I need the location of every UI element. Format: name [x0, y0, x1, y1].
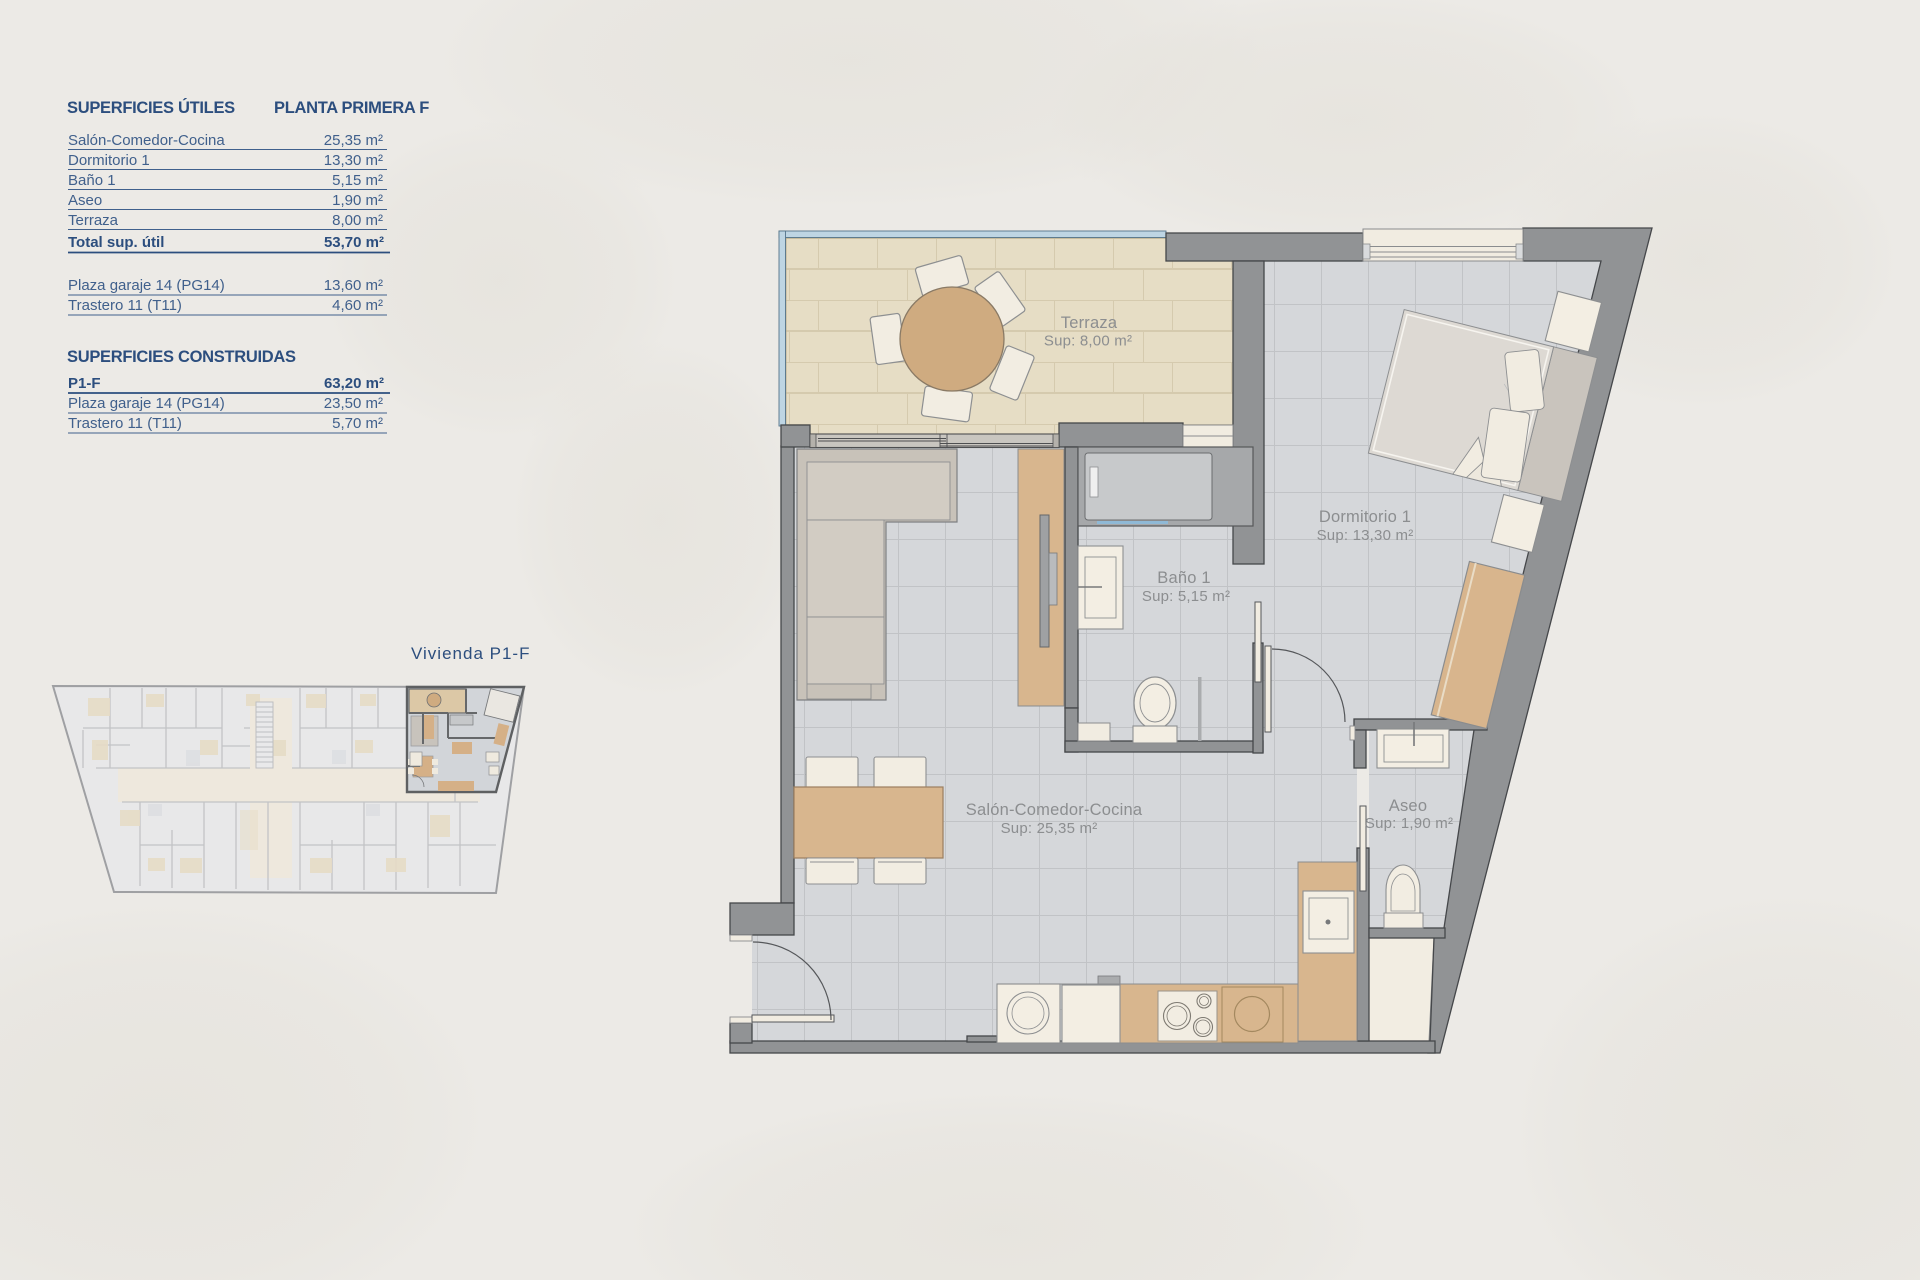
svg-text:PLANTA PRIMERA F: PLANTA PRIMERA F [274, 99, 429, 117]
svg-text:63,20 m²: 63,20 m² [324, 375, 384, 392]
svg-text:SUPERFICIES CONSTRUIDAS: SUPERFICIES CONSTRUIDAS [67, 348, 296, 366]
svg-text:Dormitorio 1: Dormitorio 1 [68, 152, 150, 169]
svg-text:13,60 m²: 13,60 m² [324, 277, 383, 294]
svg-text:Sup: 25,35 m²: Sup: 25,35 m² [1001, 820, 1098, 837]
svg-text:Plaza garaje 14 (PG14): Plaza garaje 14 (PG14) [68, 395, 225, 412]
svg-text:Aseo: Aseo [68, 192, 102, 209]
svg-text:Sup: 1,90 m²: Sup: 1,90 m² [1365, 815, 1453, 832]
svg-text:P1-F: P1-F [68, 375, 101, 392]
svg-text:Vivienda P1-F: Vivienda P1-F [411, 644, 530, 663]
svg-text:Dormitorio 1: Dormitorio 1 [1319, 508, 1411, 526]
svg-text:Aseo: Aseo [1389, 797, 1427, 815]
svg-text:25,35 m²: 25,35 m² [324, 132, 383, 149]
svg-text:5,15 m²: 5,15 m² [332, 172, 383, 189]
svg-text:Salón-Comedor-Cocina: Salón-Comedor-Cocina [68, 132, 225, 149]
svg-text:5,70 m²: 5,70 m² [332, 415, 383, 432]
svg-text:SUPERFICIES ÚTILES: SUPERFICIES ÚTILES [67, 98, 235, 117]
svg-text:Terraza: Terraza [68, 212, 119, 229]
svg-text:53,70 m²: 53,70 m² [324, 234, 384, 251]
svg-text:Plaza garaje 14 (PG14): Plaza garaje 14 (PG14) [68, 277, 225, 294]
svg-text:Sup: 5,15 m²: Sup: 5,15 m² [1142, 588, 1230, 605]
svg-text:Sup: 13,30 m²: Sup: 13,30 m² [1317, 527, 1414, 544]
svg-text:Trastero 11 (T11): Trastero 11 (T11) [68, 297, 182, 314]
svg-text:Baño 1: Baño 1 [68, 172, 116, 189]
svg-text:1,90 m²: 1,90 m² [332, 192, 383, 209]
svg-text:Total sup. útil: Total sup. útil [68, 234, 164, 251]
svg-text:23,50 m²: 23,50 m² [324, 395, 383, 412]
svg-text:Terraza: Terraza [1061, 314, 1118, 332]
svg-text:4,60 m²: 4,60 m² [332, 297, 383, 314]
svg-text:Trastero 11 (T11): Trastero 11 (T11) [68, 415, 182, 432]
svg-text:Sup: 8,00 m²: Sup: 8,00 m² [1044, 333, 1132, 350]
svg-text:Baño 1: Baño 1 [1157, 569, 1211, 587]
svg-text:Salón-Comedor-Cocina: Salón-Comedor-Cocina [966, 801, 1143, 819]
svg-text:13,30 m²: 13,30 m² [324, 152, 383, 169]
svg-text:8,00 m²: 8,00 m² [332, 212, 383, 229]
